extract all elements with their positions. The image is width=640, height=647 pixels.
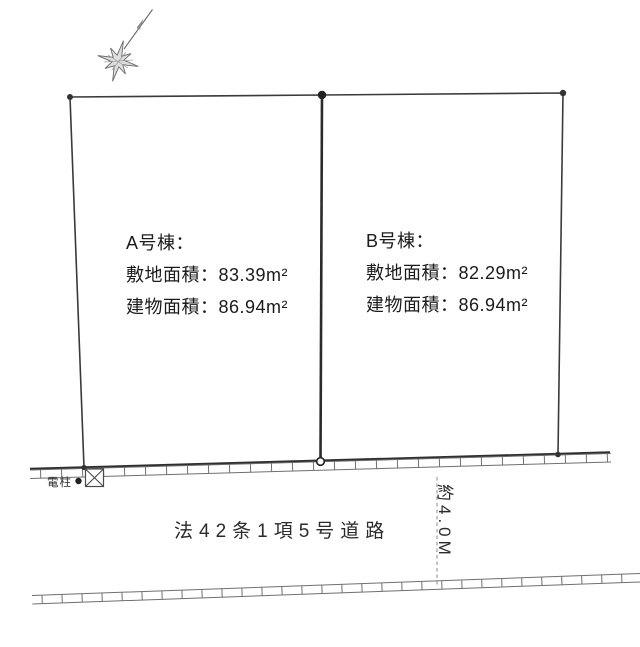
- utility-pole-label: 電柱: [47, 474, 72, 490]
- pole-dot-marker: [75, 478, 81, 484]
- plot-a-title: A号棟：: [126, 227, 288, 259]
- diagram-linework: [0, 0, 640, 647]
- north-arrow-icon: [98, 10, 153, 82]
- road-width-label: 約4.0M: [434, 484, 459, 559]
- plot-b-land-area: 敷地面積：82.29m²: [366, 257, 528, 289]
- plot-diagram-canvas: A号棟： 敷地面積：83.39m² 建物面積：86.94m² B号棟： 敷地面積…: [0, 0, 640, 647]
- plot-divider-line: [321, 95, 323, 461]
- plot-b-title: B号棟：: [366, 225, 528, 257]
- plot-b-building-area: 建物面積：86.94m²: [366, 289, 528, 321]
- road-far-boundary: [32, 574, 640, 604]
- plot-a-land-area: 敷地面積：83.39m²: [126, 259, 288, 291]
- plot-a-building-area: 建物面積：86.94m²: [126, 291, 288, 323]
- road-name-label: 法42条1項5号道路: [174, 516, 390, 543]
- plot-b-annotation: B号棟： 敷地面積：82.29m² 建物面積：86.94m²: [366, 225, 528, 321]
- plot-a-annotation: A号棟： 敷地面積：83.39m² 建物面積：86.94m²: [126, 227, 288, 323]
- crossed-box-icon: [86, 469, 104, 487]
